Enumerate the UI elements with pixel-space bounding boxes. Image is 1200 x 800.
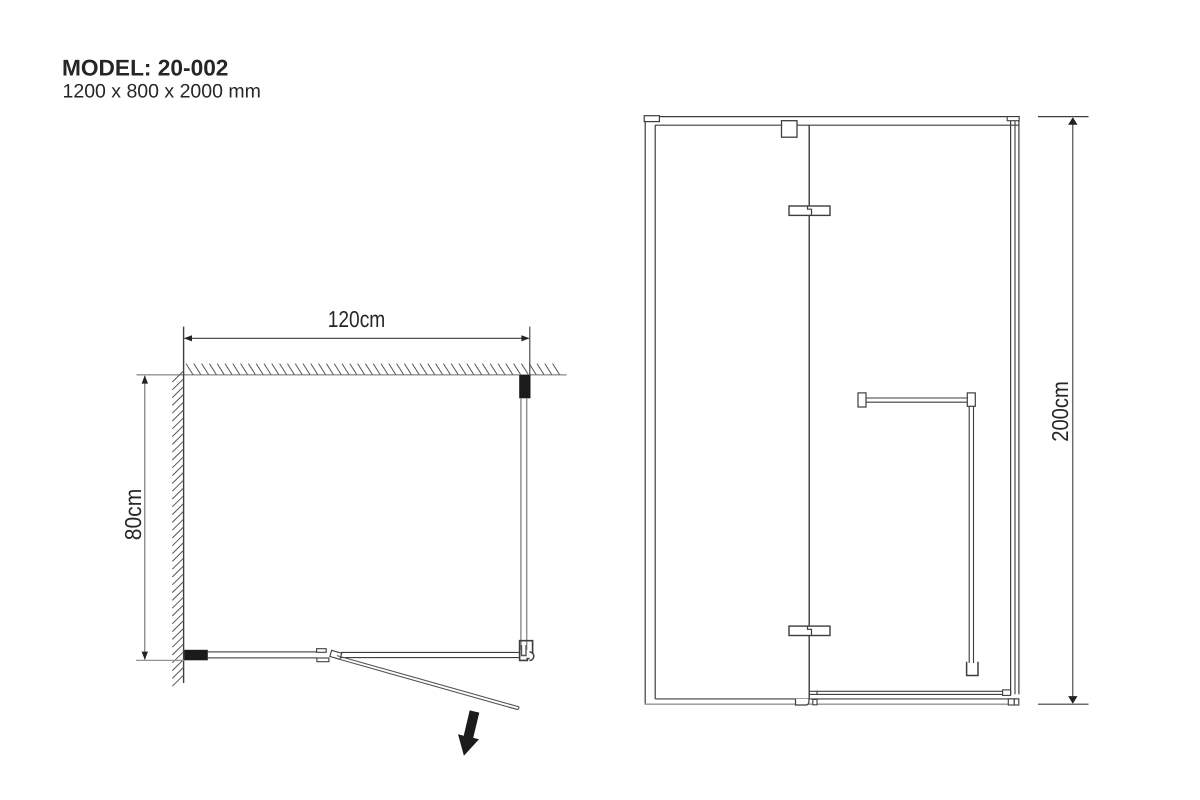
svg-text:120cm: 120cm [328,306,386,332]
svg-text:MODEL: 20-002: MODEL: 20-002 [62,55,228,81]
svg-text:1200 x 800 x 2000 mm: 1200 x 800 x 2000 mm [63,81,261,103]
svg-text:80cm: 80cm [120,489,146,541]
svg-text:200cm: 200cm [1047,381,1073,442]
